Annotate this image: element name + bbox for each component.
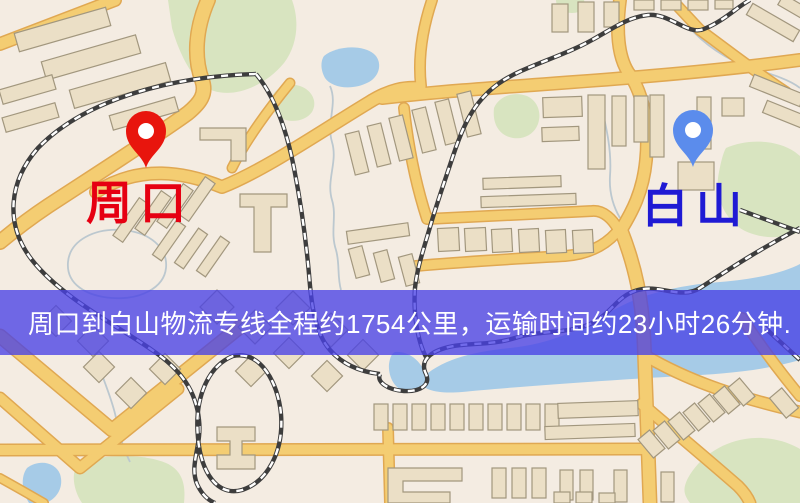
route-info-banner: 周口到白山物流专线全程约1754公里，运输时间约23小时26分钟.: [0, 290, 800, 355]
origin-label: 周口: [86, 180, 194, 226]
origin-pin-icon[interactable]: [123, 110, 169, 168]
map-canvas[interactable]: [0, 0, 800, 503]
destination-pin-icon[interactable]: [670, 109, 716, 167]
destination-label: 白山: [642, 183, 750, 229]
route-info-text: 周口到白山物流专线全程约1754公里，运输时间约23小时26分钟.: [28, 304, 791, 341]
map-view[interactable]: 周口到白山物流专线全程约1754公里，运输时间约23小时26分钟. 周口 白山: [0, 0, 800, 503]
